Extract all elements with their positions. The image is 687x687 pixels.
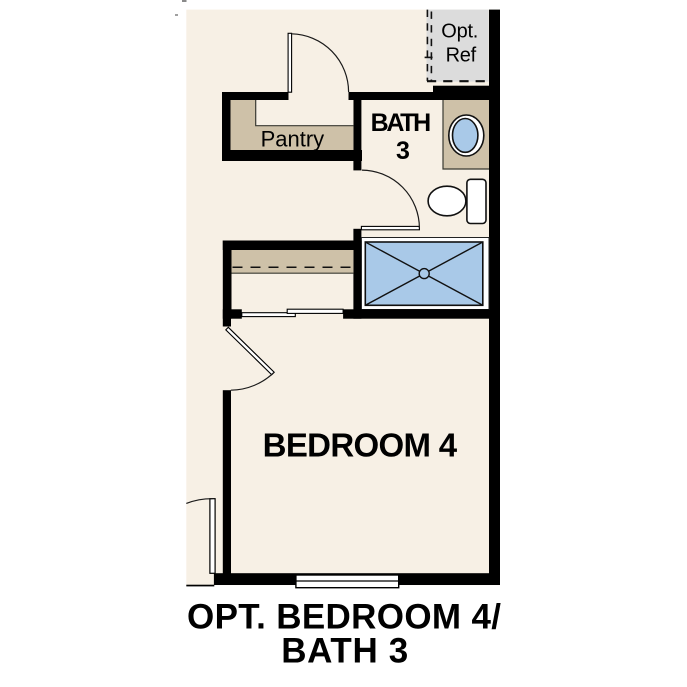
- svg-text:BATH: BATH: [371, 109, 432, 137]
- svg-text:BATH 3: BATH 3: [281, 632, 408, 671]
- svg-text:BEDROOM 4: BEDROOM 4: [263, 427, 458, 464]
- svg-text:Pantry: Pantry: [261, 127, 325, 152]
- svg-text:Opt.: Opt.: [441, 21, 478, 43]
- svg-text:Ref: Ref: [446, 45, 477, 67]
- svg-text:3: 3: [396, 137, 410, 165]
